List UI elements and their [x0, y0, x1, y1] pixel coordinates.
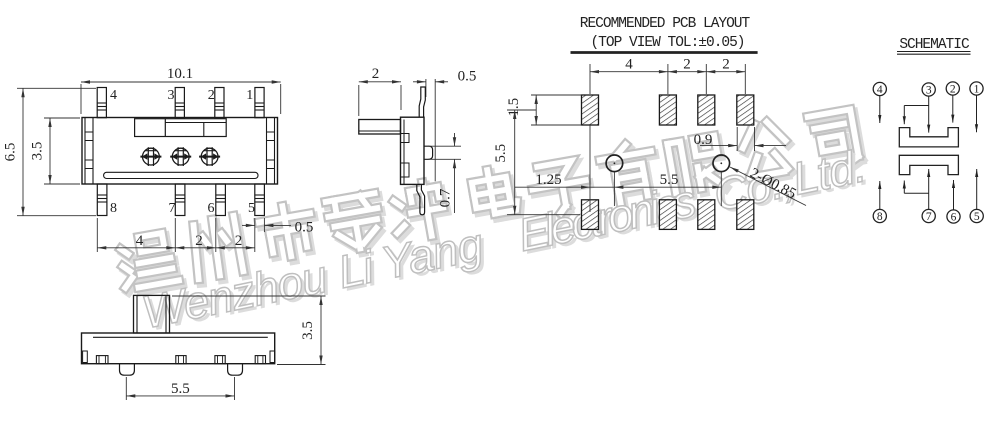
svg-text:4: 4	[136, 233, 144, 249]
svg-text:6: 6	[208, 201, 215, 216]
svg-text:0.9: 0.9	[694, 132, 713, 148]
svg-text:5: 5	[248, 201, 255, 216]
svg-text:0.5: 0.5	[458, 69, 477, 85]
svg-text:2: 2	[208, 88, 215, 103]
svg-text:2: 2	[683, 57, 691, 73]
svg-text:5.5: 5.5	[660, 172, 679, 188]
svg-text:3.5: 3.5	[30, 142, 46, 161]
svg-text:7: 7	[169, 201, 176, 216]
svg-text:2: 2	[950, 84, 956, 96]
svg-text:2: 2	[195, 233, 203, 249]
svg-text:8: 8	[110, 201, 117, 216]
svg-text:5.5: 5.5	[493, 144, 509, 163]
svg-text:6: 6	[951, 212, 957, 224]
svg-text:SCHEMATIC: SCHEMATIC	[899, 37, 970, 53]
svg-text:3: 3	[926, 85, 932, 97]
svg-text:6.5: 6.5	[3, 143, 19, 162]
svg-text:5: 5	[974, 211, 980, 223]
svg-text:4: 4	[110, 88, 117, 103]
svg-text:4: 4	[625, 57, 633, 73]
svg-text:5.5: 5.5	[171, 381, 190, 397]
svg-text:0.5: 0.5	[295, 220, 314, 236]
svg-text:1.25: 1.25	[535, 172, 561, 188]
svg-text:10.1: 10.1	[167, 66, 193, 82]
svg-text:8: 8	[877, 211, 883, 223]
svg-text:2: 2	[372, 66, 380, 82]
svg-text:(TOP VIEW TOL:±0.05): (TOP VIEW TOL:±0.05)	[590, 35, 744, 51]
svg-text:0.7: 0.7	[438, 188, 454, 207]
svg-text:1: 1	[974, 84, 980, 96]
svg-text:3: 3	[168, 88, 175, 103]
svg-text:RECOMMENDED PCB LAYOUT: RECOMMENDED PCB LAYOUT	[580, 16, 751, 32]
svg-text:1: 1	[246, 88, 253, 103]
svg-text:2: 2	[722, 57, 730, 73]
svg-text:2: 2	[235, 233, 243, 249]
svg-text:3.5: 3.5	[300, 321, 316, 340]
svg-text:4: 4	[877, 84, 883, 96]
svg-text:7: 7	[926, 211, 932, 223]
